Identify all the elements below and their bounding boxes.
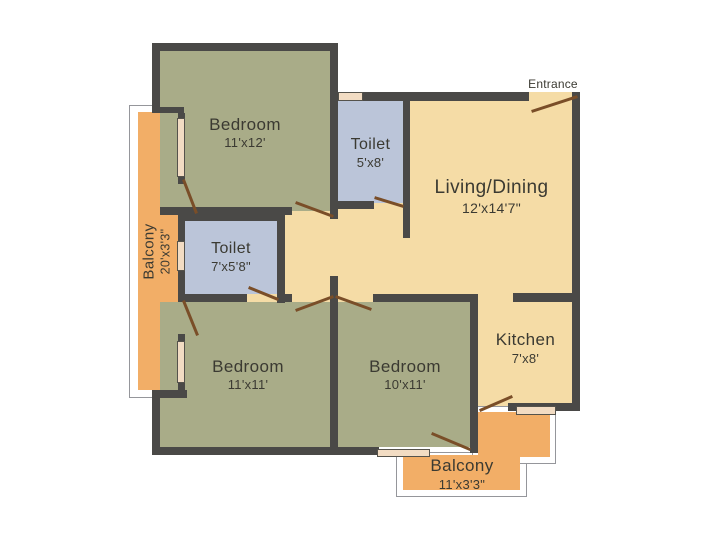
bedroom-mid-balcony-door-swing	[433, 434, 469, 449]
toilet-top-door-swing	[376, 198, 402, 206]
bedroom-top-door-swing	[297, 203, 332, 216]
bedroom-left-door-swing	[297, 297, 332, 310]
bedroom-left-balcony-door-swing	[184, 302, 197, 334]
kitchen-balcony-door-swing	[481, 397, 511, 410]
room-name: Balcony	[141, 223, 159, 279]
floor-plan: Bedroom 11'x12' Toilet 5'x8' Living/Dini…	[0, 0, 720, 540]
bedroom-top-balcony-door-swing	[184, 181, 196, 212]
balcony-left-label: Balcony 20'x3'3"	[130, 112, 184, 390]
door-swing-lines	[0, 0, 720, 540]
entrance-door-swing	[533, 97, 576, 111]
toilet-mid-door-swing	[250, 288, 277, 299]
room-dims: 20'x3'3"	[159, 223, 174, 279]
bedroom-mid-door-swing	[337, 297, 370, 309]
